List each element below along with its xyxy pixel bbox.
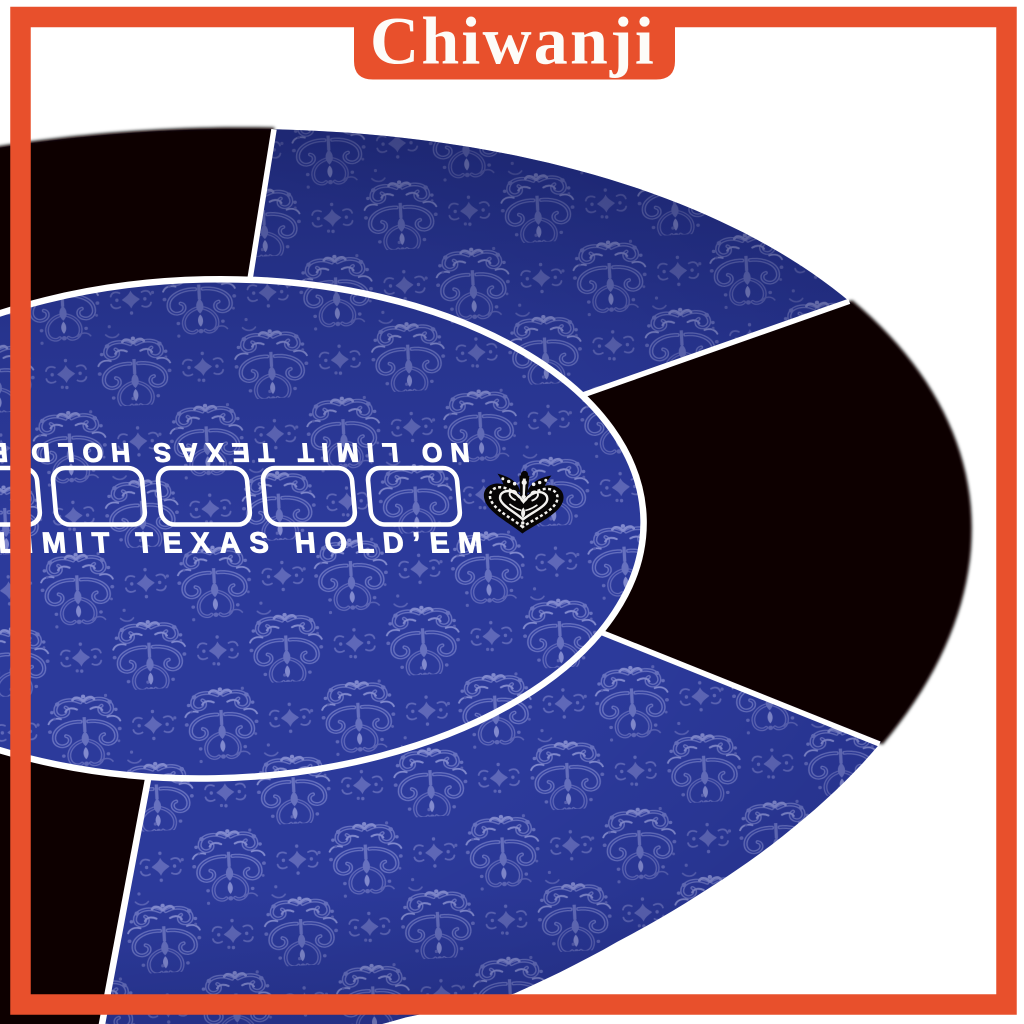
svg-text:NO LIMIT TEXAS HOLD’EM: NO LIMIT TEXAS HOLD’EM: [0, 438, 471, 468]
svg-text:NO LIMIT TEXAS HOLD’EM: NO LIMIT TEXAS HOLD’EM: [0, 528, 493, 560]
svg-text:Chiwanji: Chiwanji: [370, 3, 656, 79]
